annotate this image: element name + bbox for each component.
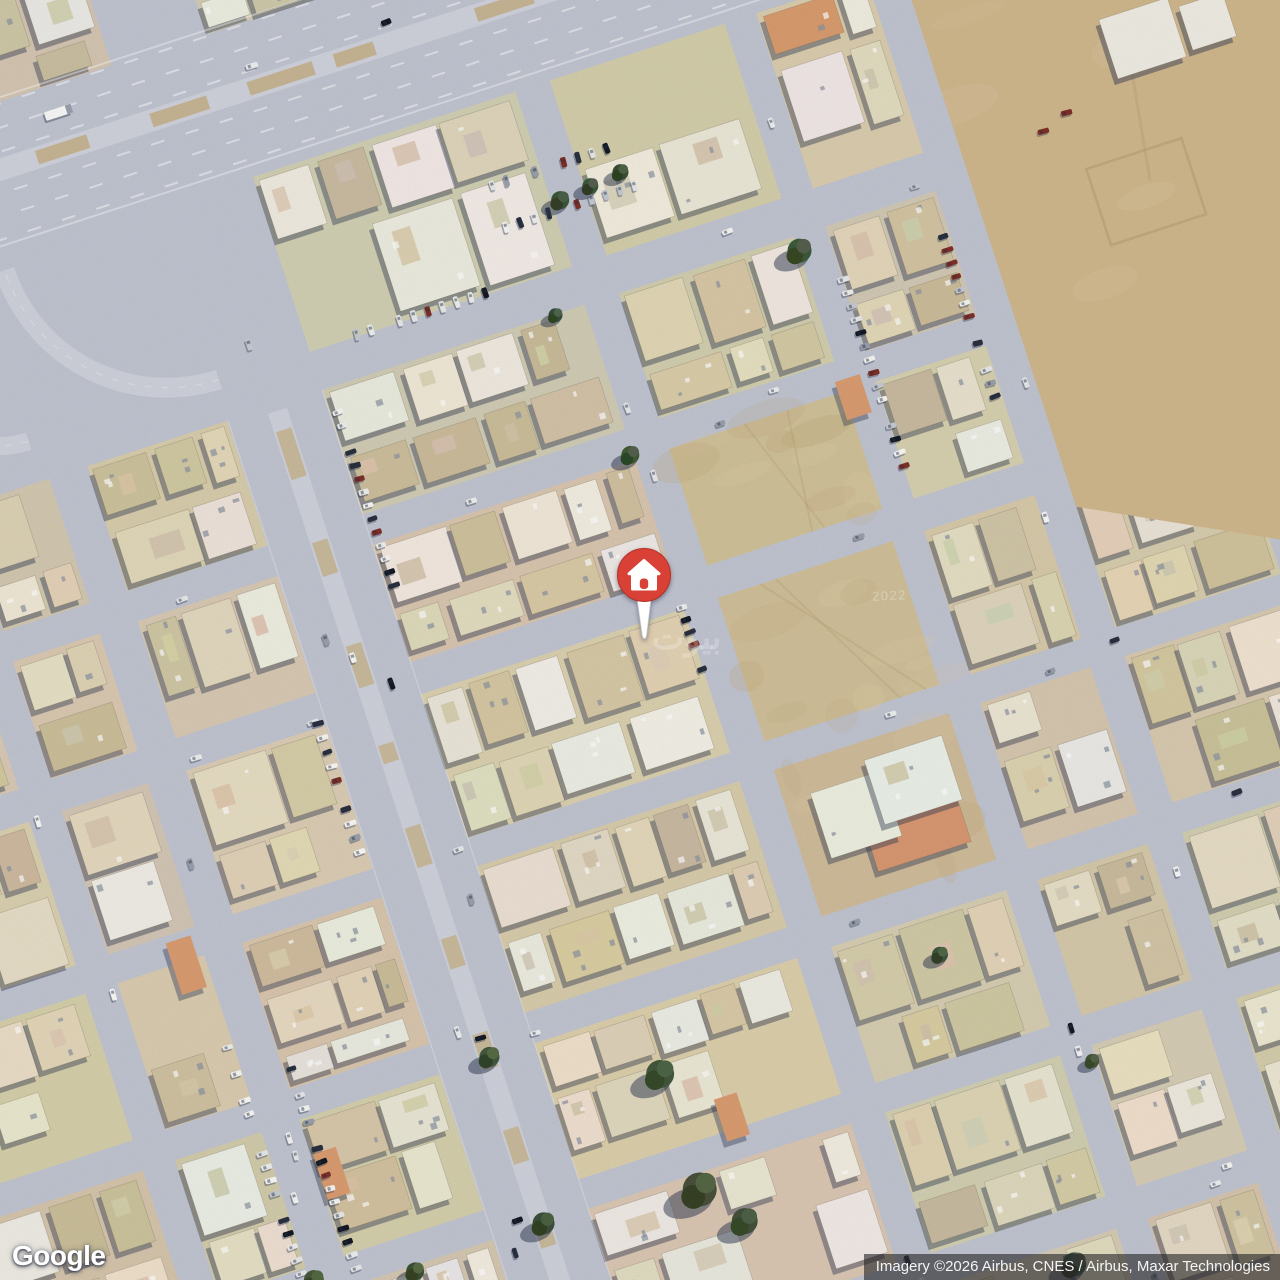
- imagery-attribution: Imagery ©2026 Airbus, CNES / Airbus, Max…: [864, 1254, 1280, 1280]
- satellite-map-canvas[interactable]: بيوت 2022 Google Imagery ©2026 Airbus, C…: [0, 0, 1280, 1280]
- house-door: [640, 579, 648, 590]
- location-marker-pin[interactable]: [584, 515, 704, 647]
- google-logo[interactable]: Google: [12, 1240, 105, 1272]
- imagery-year-watermark: 2022: [872, 587, 908, 604]
